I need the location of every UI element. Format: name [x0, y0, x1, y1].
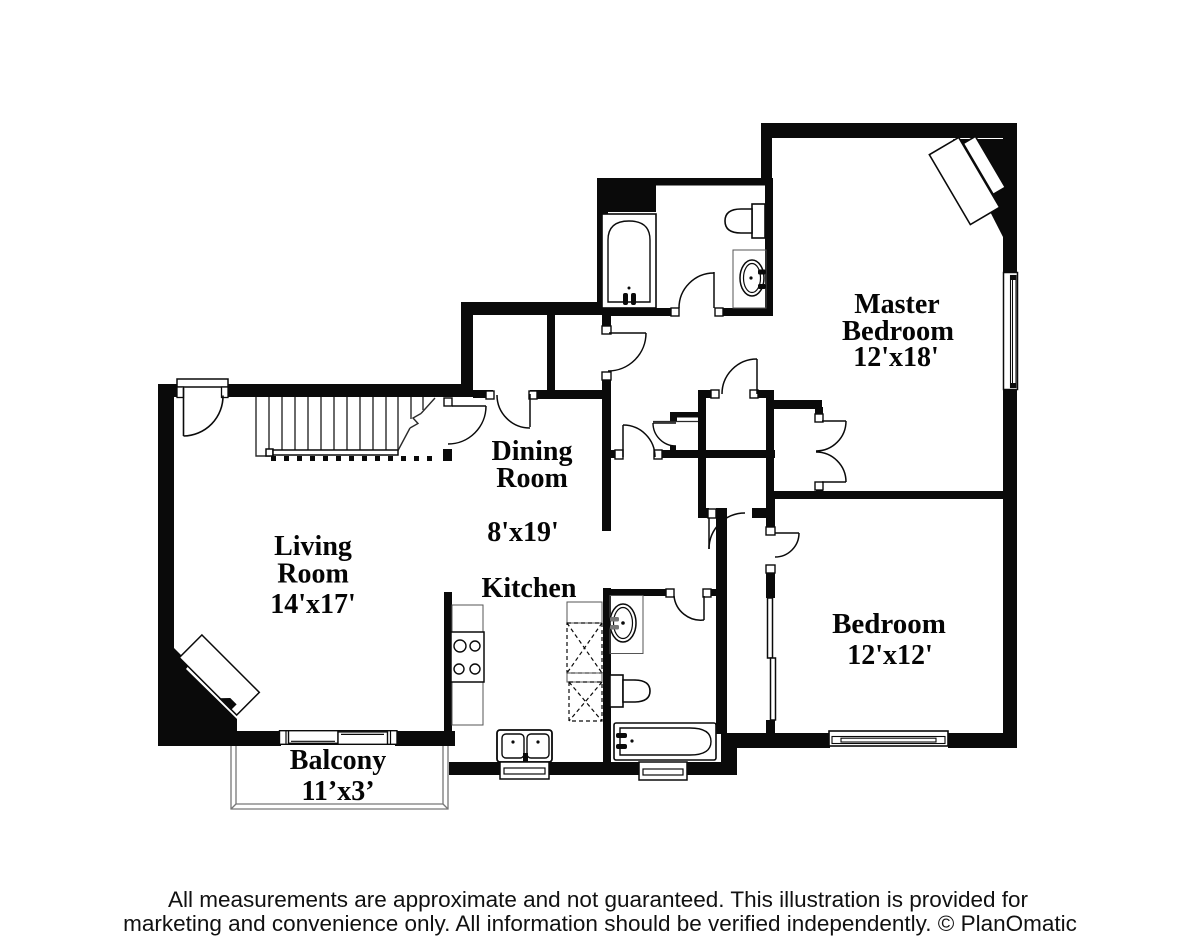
svg-text:14'x17': 14'x17' [270, 589, 356, 620]
svg-text:All measurements are approxima: All measurements are approximate and not… [168, 887, 1029, 912]
svg-text:Room: Room [277, 559, 349, 590]
svg-text:Room: Room [496, 463, 568, 494]
svg-text:Kitchen: Kitchen [482, 573, 577, 604]
svg-text:marketing and convenience only: marketing and convenience only. All info… [123, 911, 1077, 936]
svg-text:12'x12': 12'x12' [847, 640, 933, 671]
svg-text:Balcony: Balcony [290, 745, 386, 776]
svg-text:Bedroom: Bedroom [832, 608, 946, 640]
svg-text:8'x19': 8'x19' [487, 517, 559, 548]
svg-text:11’x3’: 11’x3’ [301, 776, 374, 807]
svg-text:12'x18': 12'x18' [853, 342, 939, 373]
svg-text:Living: Living [274, 531, 352, 562]
